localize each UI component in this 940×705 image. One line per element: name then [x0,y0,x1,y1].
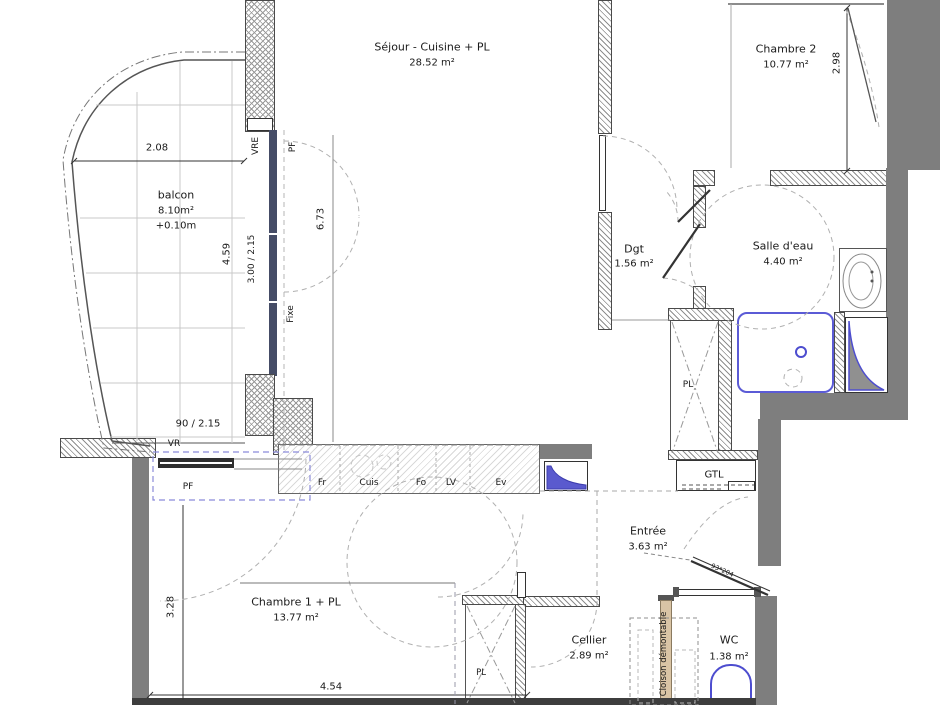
dim-sejour-window: 3.00 / 2.15 [247,235,257,284]
dim-chambre1-depth: 3.28 [165,596,177,618]
room-label-cellier: Cellier [572,635,607,648]
label-cloison-demontable: Cloison démontable [660,612,670,697]
room-area-cellier: 2.89 m² [569,650,608,662]
room-area-chambre2: 10.77 m² [763,59,809,71]
balcony-tile-grid [80,61,245,444]
door-post-wc-right [754,587,761,597]
door-post-chambre1 [517,572,526,598]
balcony-outline [63,52,245,452]
wall-bottom-edge [132,698,756,705]
room-level-balcon: +0.10m [156,220,196,232]
label-vr: VR [168,439,180,449]
wall-topright-block [887,0,940,170]
dim-chambre1-window: 90 / 2.15 [176,418,221,430]
wall-balcony-sejour-bottom [245,374,275,436]
shower-side-wall [834,312,845,393]
closet-pl-bottom-cap [462,595,524,605]
room-area-chambre1: 13.77 m² [273,612,319,624]
washbasin-box [839,248,887,312]
label-pl-top: PL [683,380,693,390]
chambre1-window-glazing [158,458,234,468]
label-cooktop: Cuis [359,478,378,488]
room-label-sejour: Séjour - Cuisine + PL [374,42,489,55]
shower-tray [737,312,834,393]
room-area-dgt: 1.56 m² [614,258,653,270]
label-dishwasher: LV [446,478,456,488]
room-area-entree: 3.63 m² [628,541,667,553]
closet-pl-bottom [465,604,517,705]
wall-left-band [60,438,156,458]
wall-entree-right [758,419,781,566]
dim-balcon-width: 2.08 [146,142,168,154]
wall-sejour-dgt-bottom [598,212,612,330]
wall-cellier-top [520,596,600,607]
room-label-chambre2: Chambre 2 [756,44,817,57]
label-pf-top: PF [288,142,298,153]
dim-sejour-length: 6.73 [315,208,327,230]
room-label-wc: WC [720,635,739,648]
room-label-entree: Entrée [630,526,666,539]
dim-chambre1-width: 4.54 [320,681,342,693]
dim-chambre2-width: 2.98 [831,52,843,74]
wall-balcony-sejour-top [245,0,275,132]
room-area-balcon: 8.10m² [158,205,194,217]
room-label-dgt: Dgt [624,244,644,257]
label-gtl: GTL [704,469,723,481]
wall-wc-right [755,596,777,705]
gtl-cap [668,450,758,460]
wall-right-exterior [886,168,908,395]
kitchen-sink-block [540,444,592,459]
wall-chambre2-dgt-stub [693,170,715,186]
wall-sejour-dgt-top [598,0,612,134]
kitchen-sink-box [544,461,588,491]
wall-chambre2-salleeau [770,170,888,186]
corner-unit-box [845,317,888,393]
wall-left-exterior [132,458,149,705]
floor-plan: Séjour - Cuisine + PL 28.52 m² Chambre 2… [0,0,940,705]
gtl-meter [728,481,755,491]
closet-pl-top-cap [668,308,734,321]
label-entry-door-size: 93*204 [710,563,735,580]
dim-balcon-depth: 4.59 [221,243,233,265]
wall-wc-top [678,589,757,596]
room-area-wc: 1.38 m² [709,651,748,663]
label-oven: Fo [416,478,426,488]
wall-dgt-salleeau-top [693,186,706,228]
label-vre: VRE [251,137,261,155]
closet-pl-top [670,320,720,455]
door-leaf-sejour-dgt [599,135,606,211]
label-fixe: Fixe [286,305,296,323]
closet-pl-bottom-wall [515,604,526,705]
sejour-window-glazing [269,130,277,376]
label-fridge: Fr [318,478,326,488]
label-pf-bottom: PF [183,482,194,492]
label-pl-bottom: PL [476,669,486,679]
wall-salleeau-bottom [760,393,908,420]
room-label-balcon: balcon [158,190,195,203]
room-label-chambre1: Chambre 1 + PL [251,597,341,610]
room-label-salleeau: Salle d'eau [753,241,814,254]
room-area-sejour: 28.52 m² [409,57,455,69]
label-sink: Ev [495,478,506,488]
room-area-salleeau: 4.40 m² [763,256,802,268]
closet-pl-top-wall [718,320,732,455]
